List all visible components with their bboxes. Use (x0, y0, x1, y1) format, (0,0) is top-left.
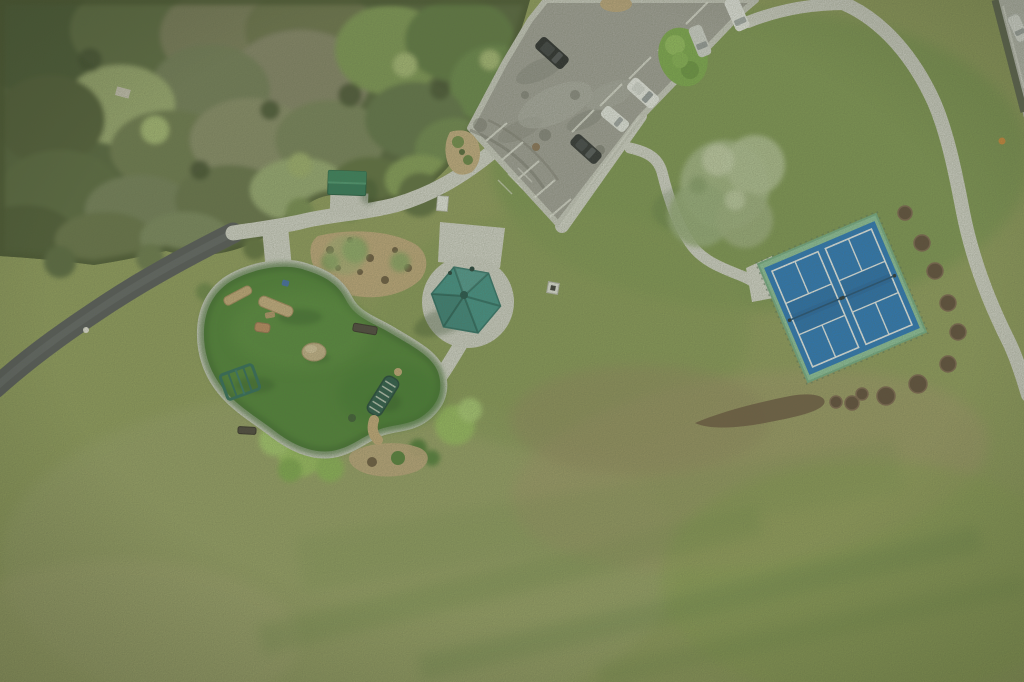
aerial-photo (0, 0, 1024, 682)
vignette (0, 0, 1024, 682)
